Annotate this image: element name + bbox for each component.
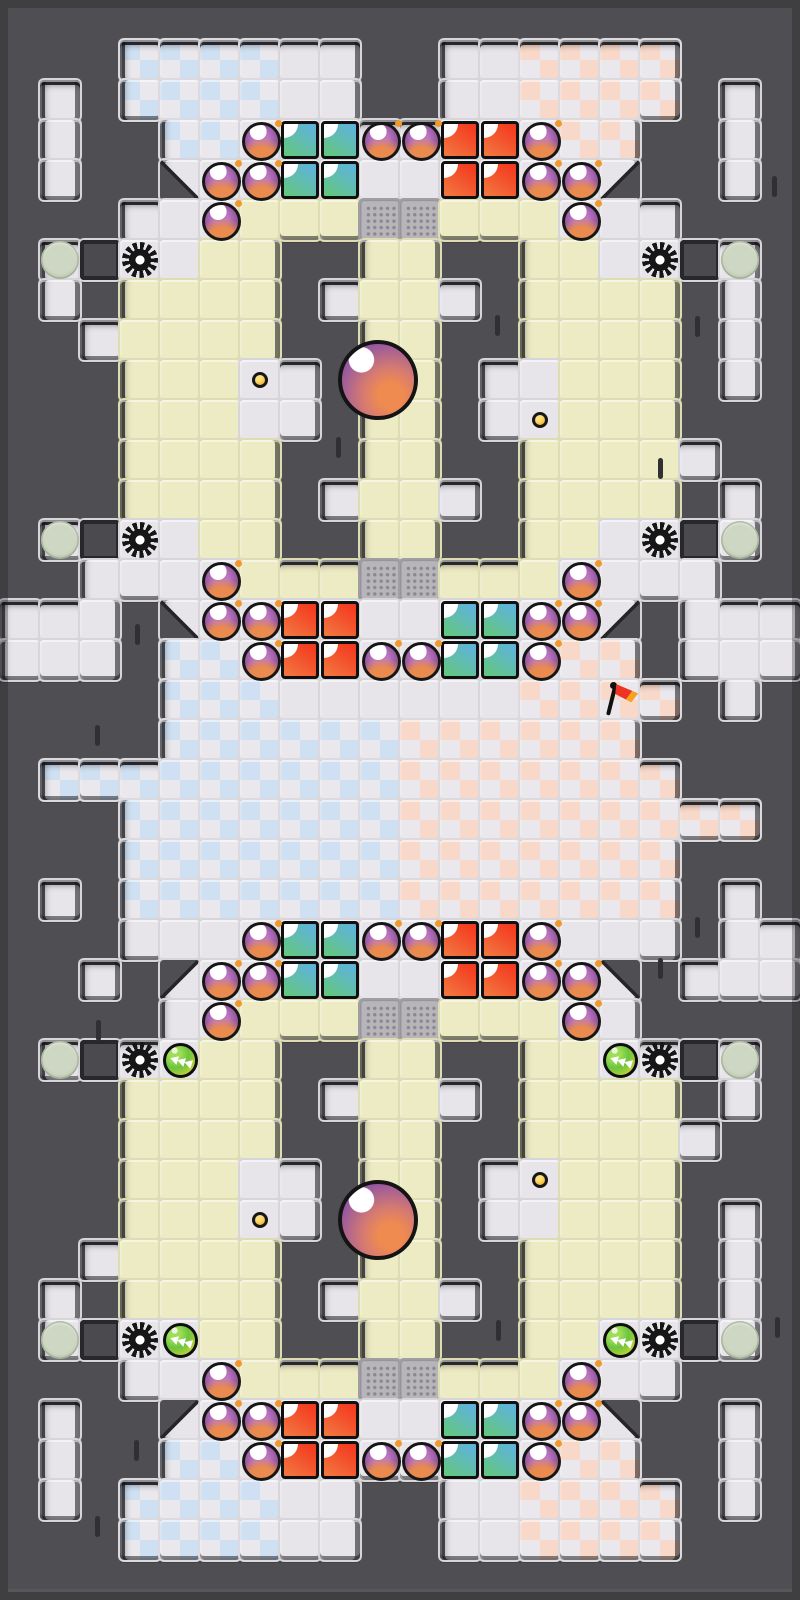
bomb[interactable] (522, 642, 561, 681)
wall-crack (134, 1440, 139, 1461)
crate-teal[interactable] (481, 1441, 519, 1479)
coin[interactable] (252, 1212, 268, 1228)
bomb[interactable] (362, 922, 401, 961)
bomb[interactable] (202, 162, 241, 201)
crate-teal[interactable] (321, 961, 359, 999)
bomb[interactable] (522, 922, 561, 961)
spawn-pad (41, 1041, 79, 1079)
spawn-pad (41, 1321, 79, 1359)
wall-crack (95, 725, 100, 746)
bomb[interactable] (242, 1442, 281, 1481)
crate-red[interactable] (481, 961, 519, 999)
bomb[interactable] (562, 1362, 601, 1401)
bomb[interactable] (202, 962, 241, 1001)
crate-red[interactable] (281, 601, 319, 639)
crate-red[interactable] (481, 921, 519, 959)
wall-crack (135, 624, 140, 645)
crate-red[interactable] (321, 1441, 359, 1479)
coin[interactable] (252, 372, 268, 388)
bomb[interactable] (562, 1402, 601, 1441)
boost-arrow-icon (624, 1060, 634, 1070)
boost-button[interactable] (163, 1323, 198, 1358)
wall-crack (695, 917, 700, 938)
crate-red[interactable] (481, 161, 519, 199)
bomb[interactable] (562, 162, 601, 201)
bomb[interactable] (522, 602, 561, 641)
bomb[interactable] (522, 962, 561, 1001)
bomb[interactable] (202, 602, 241, 641)
crate-teal[interactable] (441, 601, 479, 639)
crate-red[interactable] (281, 641, 319, 679)
crate-red[interactable] (281, 1441, 319, 1479)
bomb[interactable] (202, 562, 241, 601)
boost-arrow-icon (184, 1340, 194, 1350)
giant-orb[interactable] (338, 340, 418, 420)
bomb[interactable] (242, 962, 281, 1001)
bomb[interactable] (522, 162, 561, 201)
crate-teal[interactable] (481, 1401, 519, 1439)
wall-crack (658, 958, 663, 979)
boost-arrow-icon (624, 1340, 634, 1350)
crate-teal[interactable] (441, 1401, 479, 1439)
spawn-pad (721, 1321, 759, 1359)
crate-teal[interactable] (441, 641, 479, 679)
bomb[interactable] (362, 122, 401, 161)
saw-gear (642, 522, 678, 558)
boost-button[interactable] (603, 1323, 638, 1358)
spawn-pad (721, 1041, 759, 1079)
crate-red[interactable] (321, 1401, 359, 1439)
crate-red[interactable] (321, 641, 359, 679)
bomb[interactable] (202, 1402, 241, 1441)
bomb[interactable] (562, 562, 601, 601)
bomb[interactable] (402, 922, 441, 961)
spawn-pad (721, 241, 759, 279)
bomb[interactable] (242, 162, 281, 201)
bomb[interactable] (522, 1442, 561, 1481)
wall-crack (695, 316, 700, 337)
crate-teal[interactable] (281, 921, 319, 959)
crate-teal[interactable] (281, 121, 319, 159)
bomb[interactable] (562, 602, 601, 641)
coin[interactable] (532, 1172, 548, 1188)
bomb[interactable] (202, 202, 241, 241)
saw-gear (642, 1322, 678, 1358)
crate-red[interactable] (321, 601, 359, 639)
wall-crack (496, 1320, 501, 1341)
saw-gear (122, 242, 158, 278)
crate-red[interactable] (481, 121, 519, 159)
entity-layer (0, 0, 800, 1600)
crate-red[interactable] (441, 161, 479, 199)
giant-orb[interactable] (338, 1180, 418, 1260)
wall-crack (775, 1317, 780, 1338)
bomb[interactable] (202, 1362, 241, 1401)
bomb[interactable] (562, 962, 601, 1001)
wall-crack (336, 437, 341, 458)
spawn-pad (41, 521, 79, 559)
crate-teal[interactable] (321, 921, 359, 959)
spawn-pad (41, 241, 79, 279)
crate-teal[interactable] (321, 121, 359, 159)
bomb[interactable] (362, 642, 401, 681)
bomb[interactable] (242, 602, 281, 641)
flag-cloth (614, 683, 639, 703)
bomb[interactable] (402, 1442, 441, 1481)
crate-red[interactable] (441, 961, 479, 999)
bomb[interactable] (402, 642, 441, 681)
wall-crack (95, 1516, 100, 1537)
bomb[interactable] (202, 1002, 241, 1041)
game-board (0, 0, 800, 1600)
crate-teal[interactable] (481, 601, 519, 639)
boost-button[interactable] (163, 1043, 198, 1078)
saw-gear (122, 1042, 158, 1078)
flag[interactable] (600, 680, 640, 720)
saw-gear (122, 1322, 158, 1358)
bomb[interactable] (242, 642, 281, 681)
bomb[interactable] (562, 202, 601, 241)
bomb[interactable] (242, 122, 281, 161)
flag-pole (606, 687, 617, 716)
crate-teal[interactable] (481, 641, 519, 679)
bomb[interactable] (242, 1402, 281, 1441)
bomb[interactable] (362, 1442, 401, 1481)
wall-crack (658, 458, 663, 479)
saw-gear (642, 1042, 678, 1078)
crate-red[interactable] (281, 1401, 319, 1439)
crate-teal[interactable] (441, 1441, 479, 1479)
saw-gear (642, 242, 678, 278)
boost-button[interactable] (603, 1043, 638, 1078)
crate-red[interactable] (441, 121, 479, 159)
wall-crack (96, 1020, 101, 1041)
bomb[interactable] (522, 1402, 561, 1441)
bomb[interactable] (562, 1002, 601, 1041)
bomb[interactable] (402, 122, 441, 161)
bomb[interactable] (242, 922, 281, 961)
wall-crack (495, 315, 500, 336)
boost-arrow-icon (184, 1060, 194, 1070)
crate-teal[interactable] (281, 161, 319, 199)
crate-red[interactable] (441, 921, 479, 959)
crate-teal[interactable] (281, 961, 319, 999)
bomb[interactable] (522, 122, 561, 161)
spawn-pad (721, 521, 759, 559)
crate-teal[interactable] (321, 161, 359, 199)
coin[interactable] (532, 412, 548, 428)
wall-crack (772, 176, 777, 197)
saw-gear (122, 522, 158, 558)
